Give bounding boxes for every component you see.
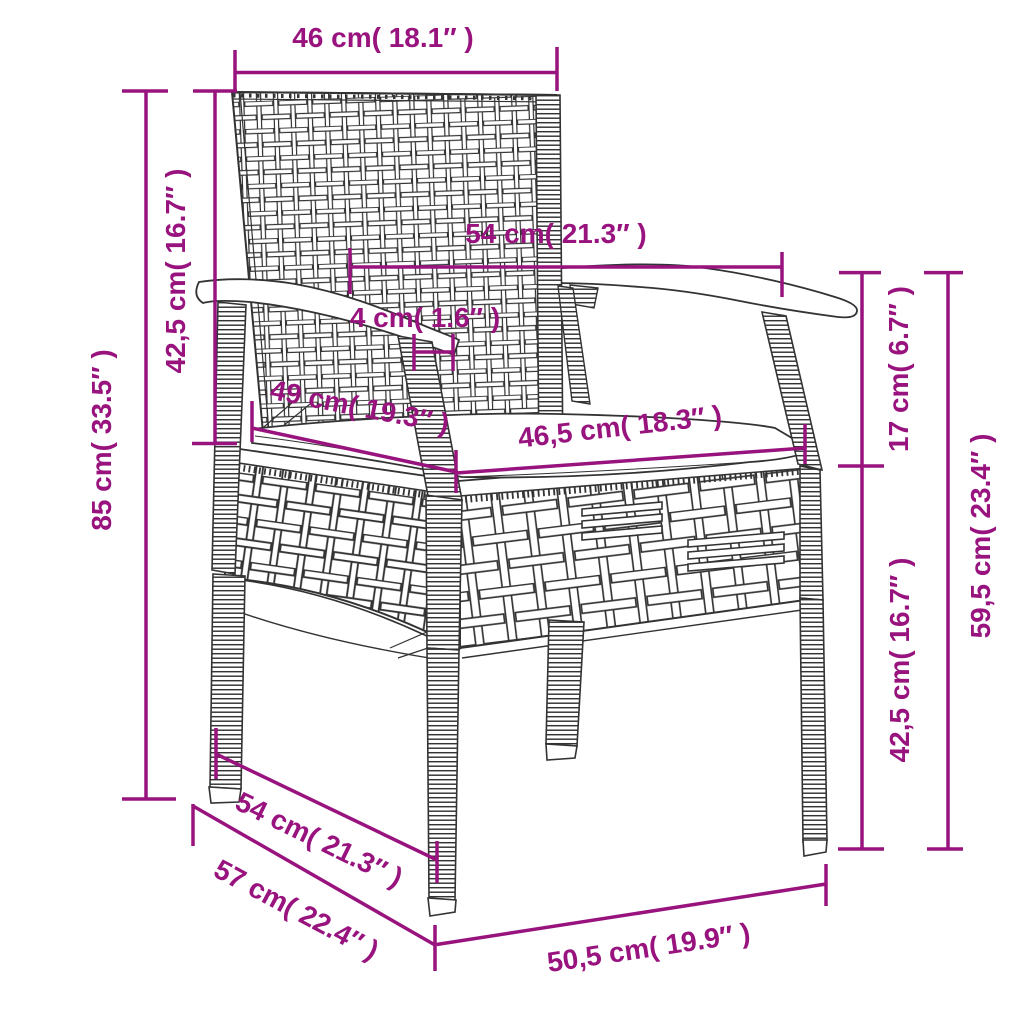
svg-text:17 cm( 6.7″ ): 17 cm( 6.7″ ) bbox=[883, 286, 914, 452]
svg-text:85 cm( 33.5″ ): 85 cm( 33.5″ ) bbox=[86, 349, 117, 531]
svg-text:42,5 cm( 16.7″ ): 42,5 cm( 16.7″ ) bbox=[884, 558, 915, 763]
svg-text:46 cm( 18.1″ ): 46 cm( 18.1″ ) bbox=[292, 22, 474, 53]
svg-text:59,5 cm( 23.4″ ): 59,5 cm( 23.4″ ) bbox=[965, 434, 996, 639]
svg-text:42,5 cm( 16.7″ ): 42,5 cm( 16.7″ ) bbox=[160, 169, 191, 374]
svg-text:54 cm( 21.3″ ): 54 cm( 21.3″ ) bbox=[465, 218, 647, 249]
svg-text:50,5 cm( 19.9″ ): 50,5 cm( 19.9″ ) bbox=[545, 917, 752, 978]
svg-text:4 cm( 1.6″ ): 4 cm( 1.6″ ) bbox=[350, 302, 500, 333]
